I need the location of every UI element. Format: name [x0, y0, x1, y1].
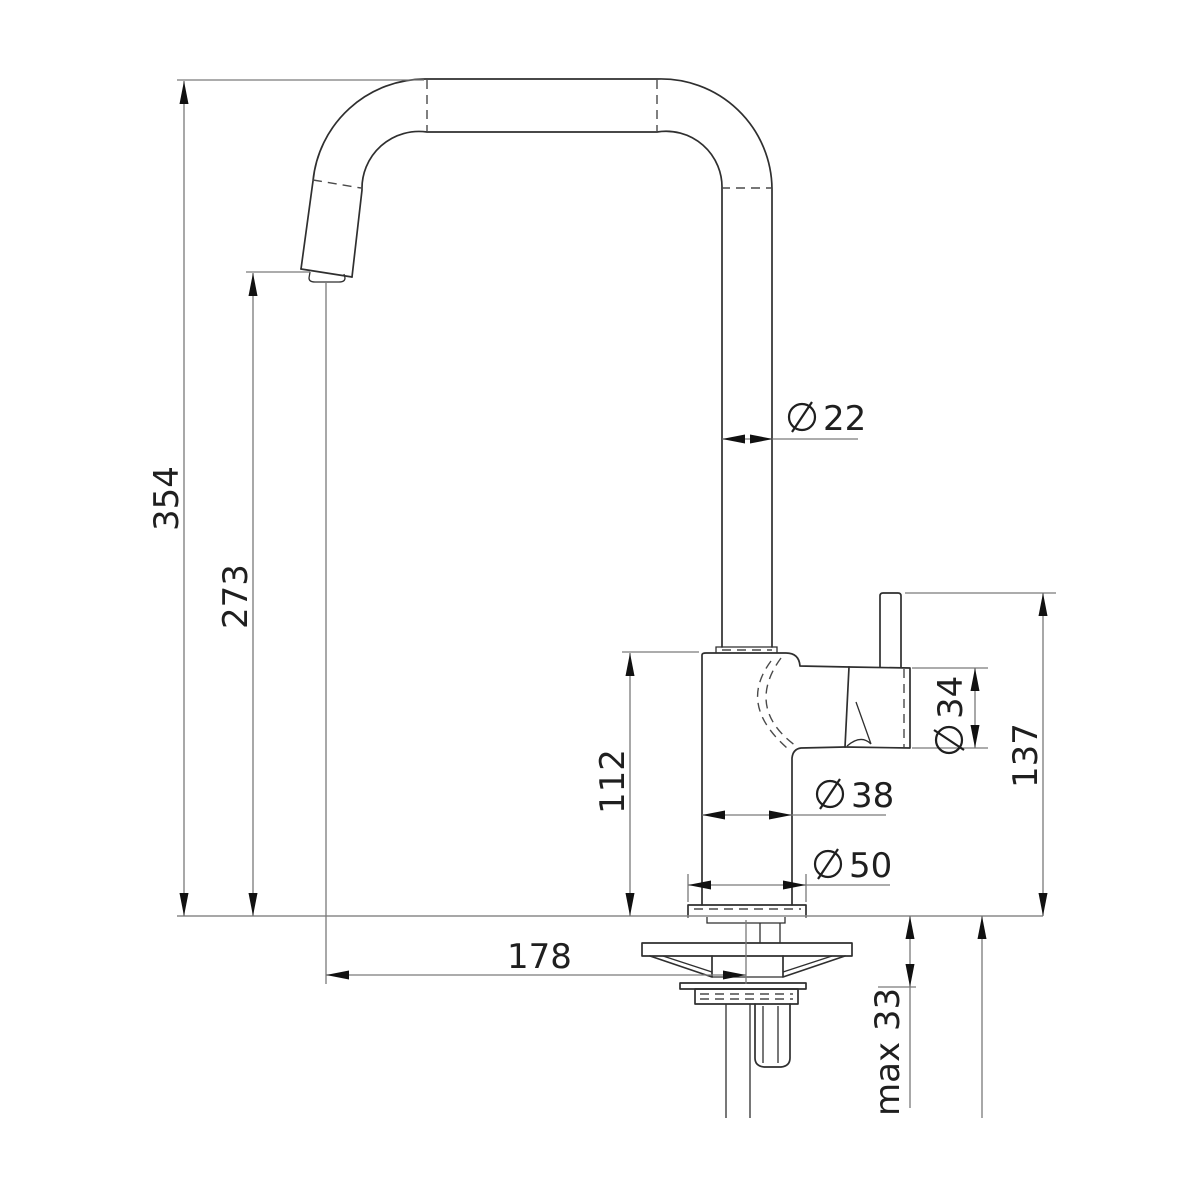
stud-flats [763, 1006, 778, 1063]
arrow-273-top [249, 273, 258, 296]
arrow-354-top [180, 81, 189, 104]
arrow-max33-bottom [906, 964, 915, 987]
cartridge-joint [845, 667, 849, 747]
arrow-137-bottom [1039, 893, 1048, 916]
arrow-273-bottom [249, 893, 258, 916]
arrow-under-counter-top [978, 916, 987, 939]
arrow-d22-right [750, 435, 773, 444]
arrow-178-right [723, 971, 746, 980]
dim-cartridge-diameter-label: 34 [931, 676, 971, 753]
arrow-112-bottom [626, 893, 635, 916]
arrowheads [180, 81, 1048, 987]
lever-linkage [847, 702, 871, 746]
arrow-d50-right [783, 881, 806, 890]
faucet-dimension-drawing: 354 273 112 137 max 33 178 22 38 [0, 0, 1200, 1200]
body-right-cone [792, 747, 845, 905]
cone-hidden-arc-2 [766, 658, 796, 746]
dim-body-height-text: 112 [593, 749, 633, 814]
spout-tube-joint [313, 180, 361, 188]
dim-body-diameter-label: 38 [817, 776, 894, 816]
arrow-d38-left [702, 811, 725, 820]
dim-total-height-text: 354 [147, 466, 187, 531]
diameter-symbol [789, 402, 815, 432]
handle-rod [880, 593, 901, 667]
diameter-symbol [815, 849, 841, 879]
dim-handle-height-text: 137 [1006, 723, 1046, 788]
faucet-outline [301, 79, 910, 1118]
cartridge-housing [845, 667, 910, 748]
bracket-wedge-left-inner [663, 956, 712, 972]
dimension-lines [177, 80, 1056, 1118]
dim-spout-reach-text: 178 [507, 937, 572, 977]
mounting-bracket-plate [642, 943, 852, 956]
spout-inner-edge [352, 131, 722, 647]
spout-outer-edge [301, 79, 772, 647]
technical-drawing-page: 354 273 112 137 max 33 178 22 38 [0, 0, 1200, 1200]
arrow-137-top [1039, 593, 1048, 616]
arrow-d50-left [688, 881, 711, 890]
washer [680, 983, 806, 989]
dim-max-thickness-text: max 33 [868, 988, 908, 1116]
arrow-112-top [626, 653, 635, 676]
dim-cartridge-diameter-text: 34 [931, 676, 971, 719]
dim-spout-diameter-text: 22 [823, 399, 866, 439]
deck-stem [760, 923, 780, 943]
arrow-d22-left [722, 435, 745, 444]
dim-spout-height-text: 273 [216, 564, 256, 629]
dimension-texts: 354 273 112 137 max 33 178 22 38 [147, 399, 1046, 1116]
diameter-symbol [934, 727, 964, 753]
cone-hidden-arc-1 [758, 661, 787, 748]
arrow-178-left [326, 971, 349, 980]
mounting-nut [695, 989, 798, 1004]
arrow-d38-right [769, 811, 792, 820]
bracket-wedge-left [650, 956, 712, 977]
arrow-d34-bottom [971, 725, 980, 748]
supply-hoses [726, 1004, 750, 1118]
bracket-wedge-right-inner [783, 956, 832, 972]
dim-base-diameter-text: 50 [849, 846, 892, 886]
arrow-d34-top [971, 668, 980, 691]
arrow-354-bottom [180, 893, 189, 916]
dim-body-diameter-text: 38 [851, 776, 894, 816]
threaded-stud [755, 1004, 790, 1067]
arrow-max33-top [906, 916, 915, 939]
bracket-wedge-right [783, 956, 845, 977]
dim-spout-diameter-label: 22 [789, 399, 866, 439]
dim-base-diameter-label: 50 [815, 846, 892, 886]
diameter-symbol [817, 779, 843, 809]
